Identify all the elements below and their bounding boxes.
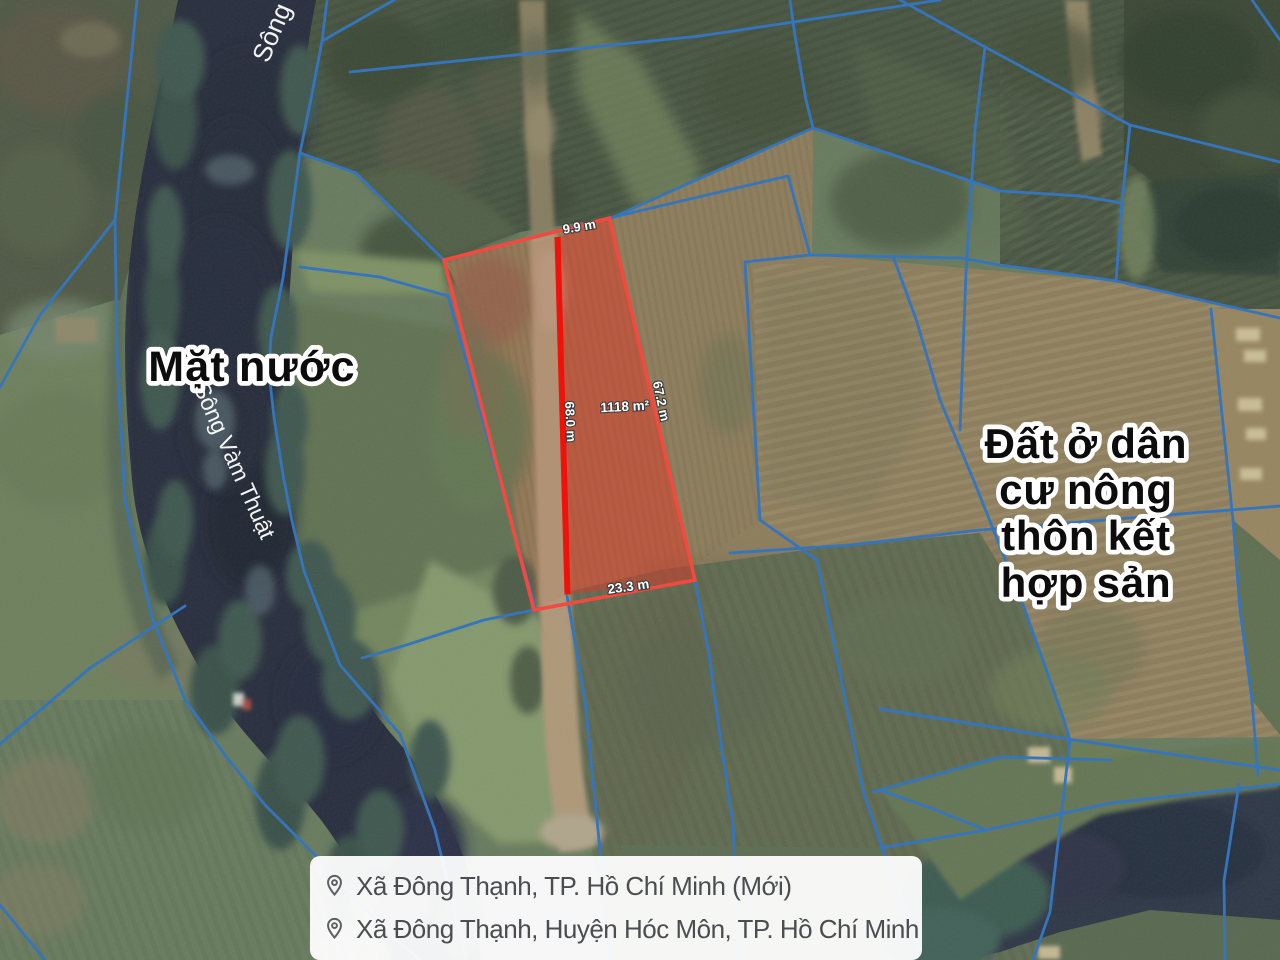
svg-text:hợp sản: hợp sản [1001, 559, 1172, 606]
svg-text:Mặt nước: Mặt nước [148, 343, 356, 391]
svg-text:cư nông: cư nông [999, 466, 1173, 513]
svg-text:1118 m²: 1118 m² [600, 398, 650, 416]
svg-text:thôn kết: thôn kết [1001, 512, 1171, 559]
svg-text:Đất ở dân: Đất ở dân [985, 420, 1188, 467]
svg-text:68.0 m: 68.0 m [562, 401, 579, 442]
